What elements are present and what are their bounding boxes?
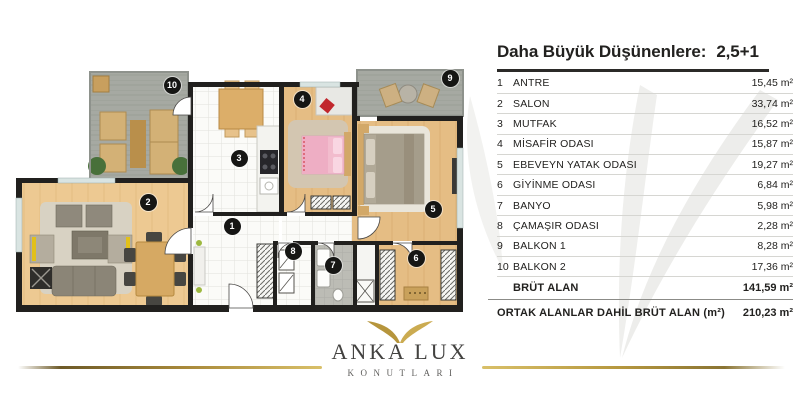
toilet <box>333 289 343 301</box>
row-number: 5 <box>497 159 513 171</box>
sink <box>260 178 278 194</box>
table-row: 1ANTRE15,45 m² <box>497 74 793 94</box>
brand-subtitle: KONUTLARI <box>290 368 510 378</box>
title-text: Daha Büyük Düşünenlere: <box>497 42 706 62</box>
wardrobe <box>380 250 395 300</box>
row-label: EBEVEYN YATAK ODASI <box>513 159 752 171</box>
row-value: 8,28 m² <box>757 240 793 252</box>
row-label: BALKON 2 <box>513 261 752 273</box>
row-label: ORTAK ALANLAR DAHİL BRÜT ALAN (m²) <box>497 307 743 319</box>
gold-divider-right <box>482 366 785 369</box>
table-row: 2SALON33,74 m² <box>497 94 793 114</box>
dining-table <box>219 89 263 129</box>
table-row: 5EBEVEYN YATAK ODASI19,27 m² <box>497 155 793 175</box>
row-label: ANTRE <box>513 77 752 89</box>
table-row: 10BALKON 217,36 m² <box>497 257 793 277</box>
row-value: 5,98 m² <box>757 200 793 212</box>
sofa <box>52 266 116 296</box>
table-row: 3MUTFAK16,52 m² <box>497 114 793 134</box>
room-badge-camasir-odasi: 8 <box>285 243 302 260</box>
window <box>457 148 463 228</box>
room-badge-antre: 1 <box>224 218 241 235</box>
row-value: 15,87 m² <box>752 138 793 150</box>
wardrobe <box>441 250 456 300</box>
brand-logo: ANKA LUX KONUTLARI <box>290 320 510 378</box>
window <box>16 198 22 252</box>
area-panel: Daha Büyük Düşünenlere: 2,5+1 1ANTRE15,4… <box>497 42 793 325</box>
row-value: 15,45 m² <box>752 77 793 89</box>
table-row: 6GİYİNME ODASI6,84 m² <box>497 175 793 195</box>
room-badge-giyinme-odasi: 6 <box>408 250 425 267</box>
row-label: MUTFAK <box>513 118 752 130</box>
row-label: BANYO <box>513 200 757 212</box>
cooktop <box>260 150 278 174</box>
window <box>300 82 340 87</box>
room-badge-salon: 2 <box>140 194 157 211</box>
row-number: 7 <box>497 200 513 212</box>
table-row: 8ÇAMAŞIR ODASI2,28 m² <box>497 216 793 236</box>
table-row: 7BANYO5,98 m² <box>497 196 793 216</box>
row-number: 1 <box>497 77 513 89</box>
row-label: SALON <box>513 98 752 110</box>
title-plan-type: 2,5+1 <box>716 42 759 62</box>
console-table <box>194 247 205 285</box>
corridor-floor <box>282 216 357 241</box>
row-label: MİSAFİR ODASI <box>513 138 752 150</box>
row-label: BALKON 1 <box>513 240 757 252</box>
grand-total-row: ORTAK ALANLAR DAHİL BRÜT ALAN (m²) 210,2… <box>497 300 793 325</box>
title-underline <box>497 69 769 72</box>
row-value: 16,52 m² <box>752 118 793 130</box>
room-badge-misafir-odasi: 4 <box>294 91 311 108</box>
row-number: 2 <box>497 98 513 110</box>
room-badge-banyo: 7 <box>325 257 342 274</box>
area-table: 1ANTRE15,45 m²2SALON33,74 m²3MUTFAK16,52… <box>497 74 793 278</box>
row-value: 19,27 m² <box>752 159 793 171</box>
row-number: 10 <box>497 261 513 273</box>
table-row: 9BALKON 18,28 m² <box>497 237 793 257</box>
row-number: 9 <box>497 240 513 252</box>
panel-title: Daha Büyük Düşünenlere: 2,5+1 <box>497 42 793 62</box>
room-badge-mutfak: 3 <box>231 150 248 167</box>
row-label: ÇAMAŞIR ODASI <box>513 220 757 232</box>
row-value: 17,36 m² <box>752 261 793 273</box>
room-badge-balkon-1: 9 <box>442 70 459 87</box>
row-label: GİYİNME ODASI <box>513 179 757 191</box>
room-badge-ebeveyn-yatak-odasi: 5 <box>425 201 442 218</box>
room-badge-balkon-2: 10 <box>164 77 181 94</box>
row-number: 4 <box>497 138 513 150</box>
row-label: BRÜT ALAN <box>513 282 743 294</box>
row-value: 33,74 m² <box>752 98 793 110</box>
row-value: 210,23 m² <box>743 307 793 319</box>
row-value: 141,59 m² <box>743 282 793 294</box>
brut-alan-row: BRÜT ALAN 141,59 m² <box>497 277 793 299</box>
table-row: 4MİSAFİR ODASI15,87 m² <box>497 135 793 155</box>
gold-divider-left <box>18 366 322 369</box>
brand-name: ANKA LUX <box>290 339 510 365</box>
row-number: 6 <box>497 179 513 191</box>
row-number: 8 <box>497 220 513 232</box>
row-value: 6,84 m² <box>757 179 793 191</box>
window <box>58 178 115 183</box>
row-number: 3 <box>497 118 513 130</box>
brochure-page: 12345678910 Daha Büyük Düşünenlere: 2,5+… <box>0 0 800 410</box>
row-value: 2,28 m² <box>757 220 793 232</box>
